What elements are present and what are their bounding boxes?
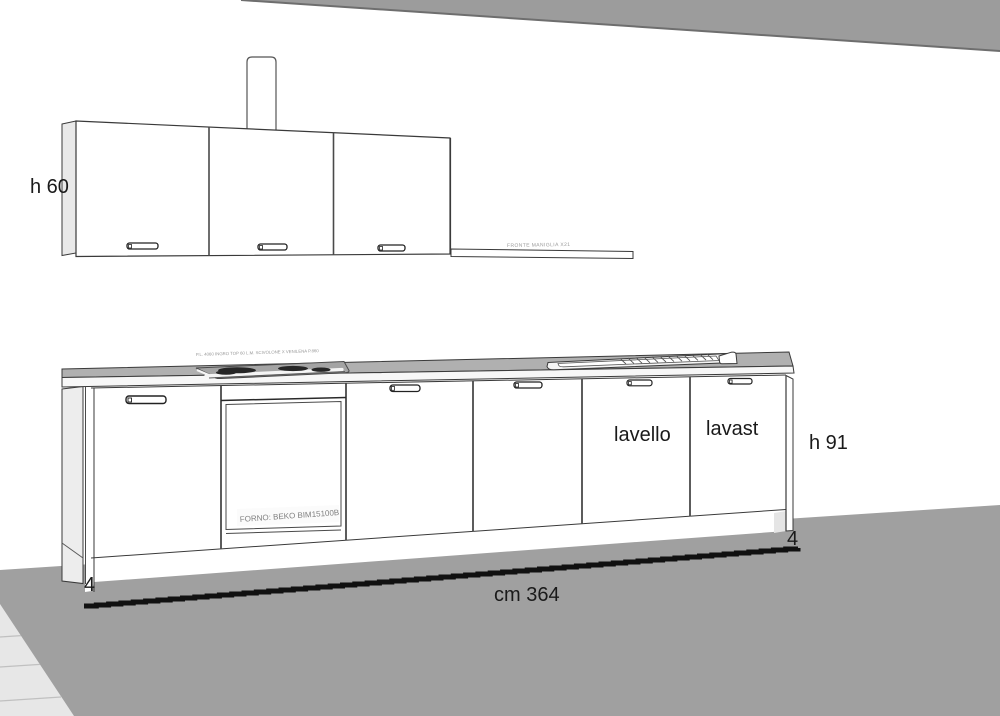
svg-text:lavast: lavast xyxy=(706,418,759,440)
svg-text:4: 4 xyxy=(84,574,95,596)
svg-text:h 91: h 91 xyxy=(809,432,848,454)
svg-text:4: 4 xyxy=(787,528,798,550)
svg-text:FRONTE MANIGLIA X21: FRONTE MANIGLIA X21 xyxy=(507,242,571,249)
svg-text:h 60: h 60 xyxy=(30,176,69,198)
svg-text:lavello: lavello xyxy=(614,424,671,446)
svg-text:cm 364: cm 364 xyxy=(494,584,560,606)
